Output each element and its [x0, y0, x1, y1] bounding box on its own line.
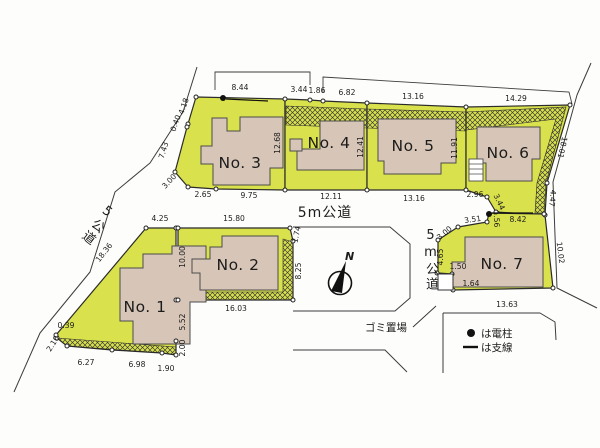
dim-no7-left-d: 1.64 — [463, 279, 480, 288]
dim-no7-bottom: 13.63 — [496, 300, 518, 309]
legend-pole-label: は電柱 — [481, 327, 513, 340]
center-neighbor-parcel — [293, 227, 410, 311]
dim-no4-bottom: 12.11 — [320, 192, 342, 201]
dim-no1-right-b: 5.52 — [178, 313, 187, 330]
dim-no1-right-c: 2.00 — [178, 339, 187, 356]
southwest-neighbor-parcel — [293, 350, 407, 372]
road-label-right-vertical: 5m公道 — [421, 228, 440, 292]
dim-no4-right: 12.41 — [356, 136, 365, 158]
dim-no5-bottom: 13.16 — [403, 194, 425, 203]
dim-no4-top-c: 6.82 — [339, 88, 356, 97]
bracket-right — [323, 77, 572, 104]
compass-north-label: N — [345, 250, 354, 263]
compass-needle-icon — [331, 261, 346, 293]
lot-label-no6: No. 6 — [486, 144, 529, 162]
dim-no3-left-b: 0.40 — [169, 114, 183, 133]
utility-pole-icon — [486, 211, 492, 217]
garbage-label: ゴミ置場 — [365, 321, 407, 334]
dim-no4-top-b: 1.86 — [309, 86, 326, 95]
dim-no3-left-d: 3.00 — [160, 172, 178, 191]
legend-wire-label: は支線 — [481, 341, 513, 354]
lot-label-no4: No. 4 — [307, 134, 350, 152]
dim-no1-right-a: 10.00 — [178, 246, 187, 268]
lot-label-no7: No. 7 — [480, 255, 523, 273]
dim-no1-bottom-a: 6.27 — [78, 358, 95, 367]
dim-no3-left-c: 7.43 — [157, 141, 171, 160]
dim-no2-right: 8.25 — [294, 262, 303, 279]
lot-map-page: No. 1 No. 2 No. 3 No. 4 No. 5 No. 6 No. … — [0, 0, 600, 448]
dim-no6-top: 14.29 — [505, 94, 527, 103]
compass: N — [329, 250, 355, 295]
lot-label-no3: No. 3 — [218, 154, 261, 172]
dim-no5-top: 13.16 — [402, 92, 424, 101]
map-legend: は電柱 は支線 — [463, 327, 513, 354]
dim-no1-bottom-c: 1.90 — [158, 364, 175, 373]
dim-no3-bottom-a: 2.65 — [195, 190, 212, 199]
utility-pole-icon — [220, 95, 226, 101]
lot-label-no1: No. 1 — [123, 298, 166, 316]
house-no6-stairs — [469, 159, 483, 181]
dim-no1-bottom-b: 6.98 — [129, 360, 146, 369]
dim-no6-bottom-a: 2.96 — [467, 190, 484, 199]
garbage-square — [438, 274, 453, 290]
right-road-outer-edge — [553, 63, 597, 308]
dim-no3-bottom-b: 9.75 — [241, 191, 258, 200]
road-label-center: 5m公道 — [298, 205, 353, 221]
dim-no3-right: 12.68 — [273, 132, 282, 154]
dim-no4-top-a: 3.44 — [291, 85, 308, 94]
dim-no2-bottom: 16.03 — [225, 304, 247, 313]
garbage-leader-line — [413, 306, 436, 327]
dim-no6-right-lower: 4.47 — [547, 189, 557, 207]
dim-no7-top-b: 1.56 — [492, 210, 502, 227]
dim-no3-left-a: 4.18 — [177, 97, 191, 116]
legend-pole-icon — [467, 329, 475, 337]
dim-no3-top: 8.44 — [232, 83, 249, 92]
dim-no1-left-diag: 18.36 — [94, 241, 115, 264]
dim-no1-left-a: 0.39 — [58, 321, 75, 330]
dim-no2-top: 15.80 — [223, 214, 245, 223]
house-no4-porch — [290, 139, 302, 151]
dim-no7-left-c: 1.50 — [450, 262, 467, 271]
dim-no7-top-c: 8.42 — [510, 215, 527, 224]
dim-no5-right: 11.91 — [450, 137, 459, 159]
lot-label-no5: No. 5 — [391, 137, 434, 155]
dim-no1-top: 4.25 — [152, 214, 169, 223]
lot-label-no2: No. 2 — [216, 256, 259, 274]
